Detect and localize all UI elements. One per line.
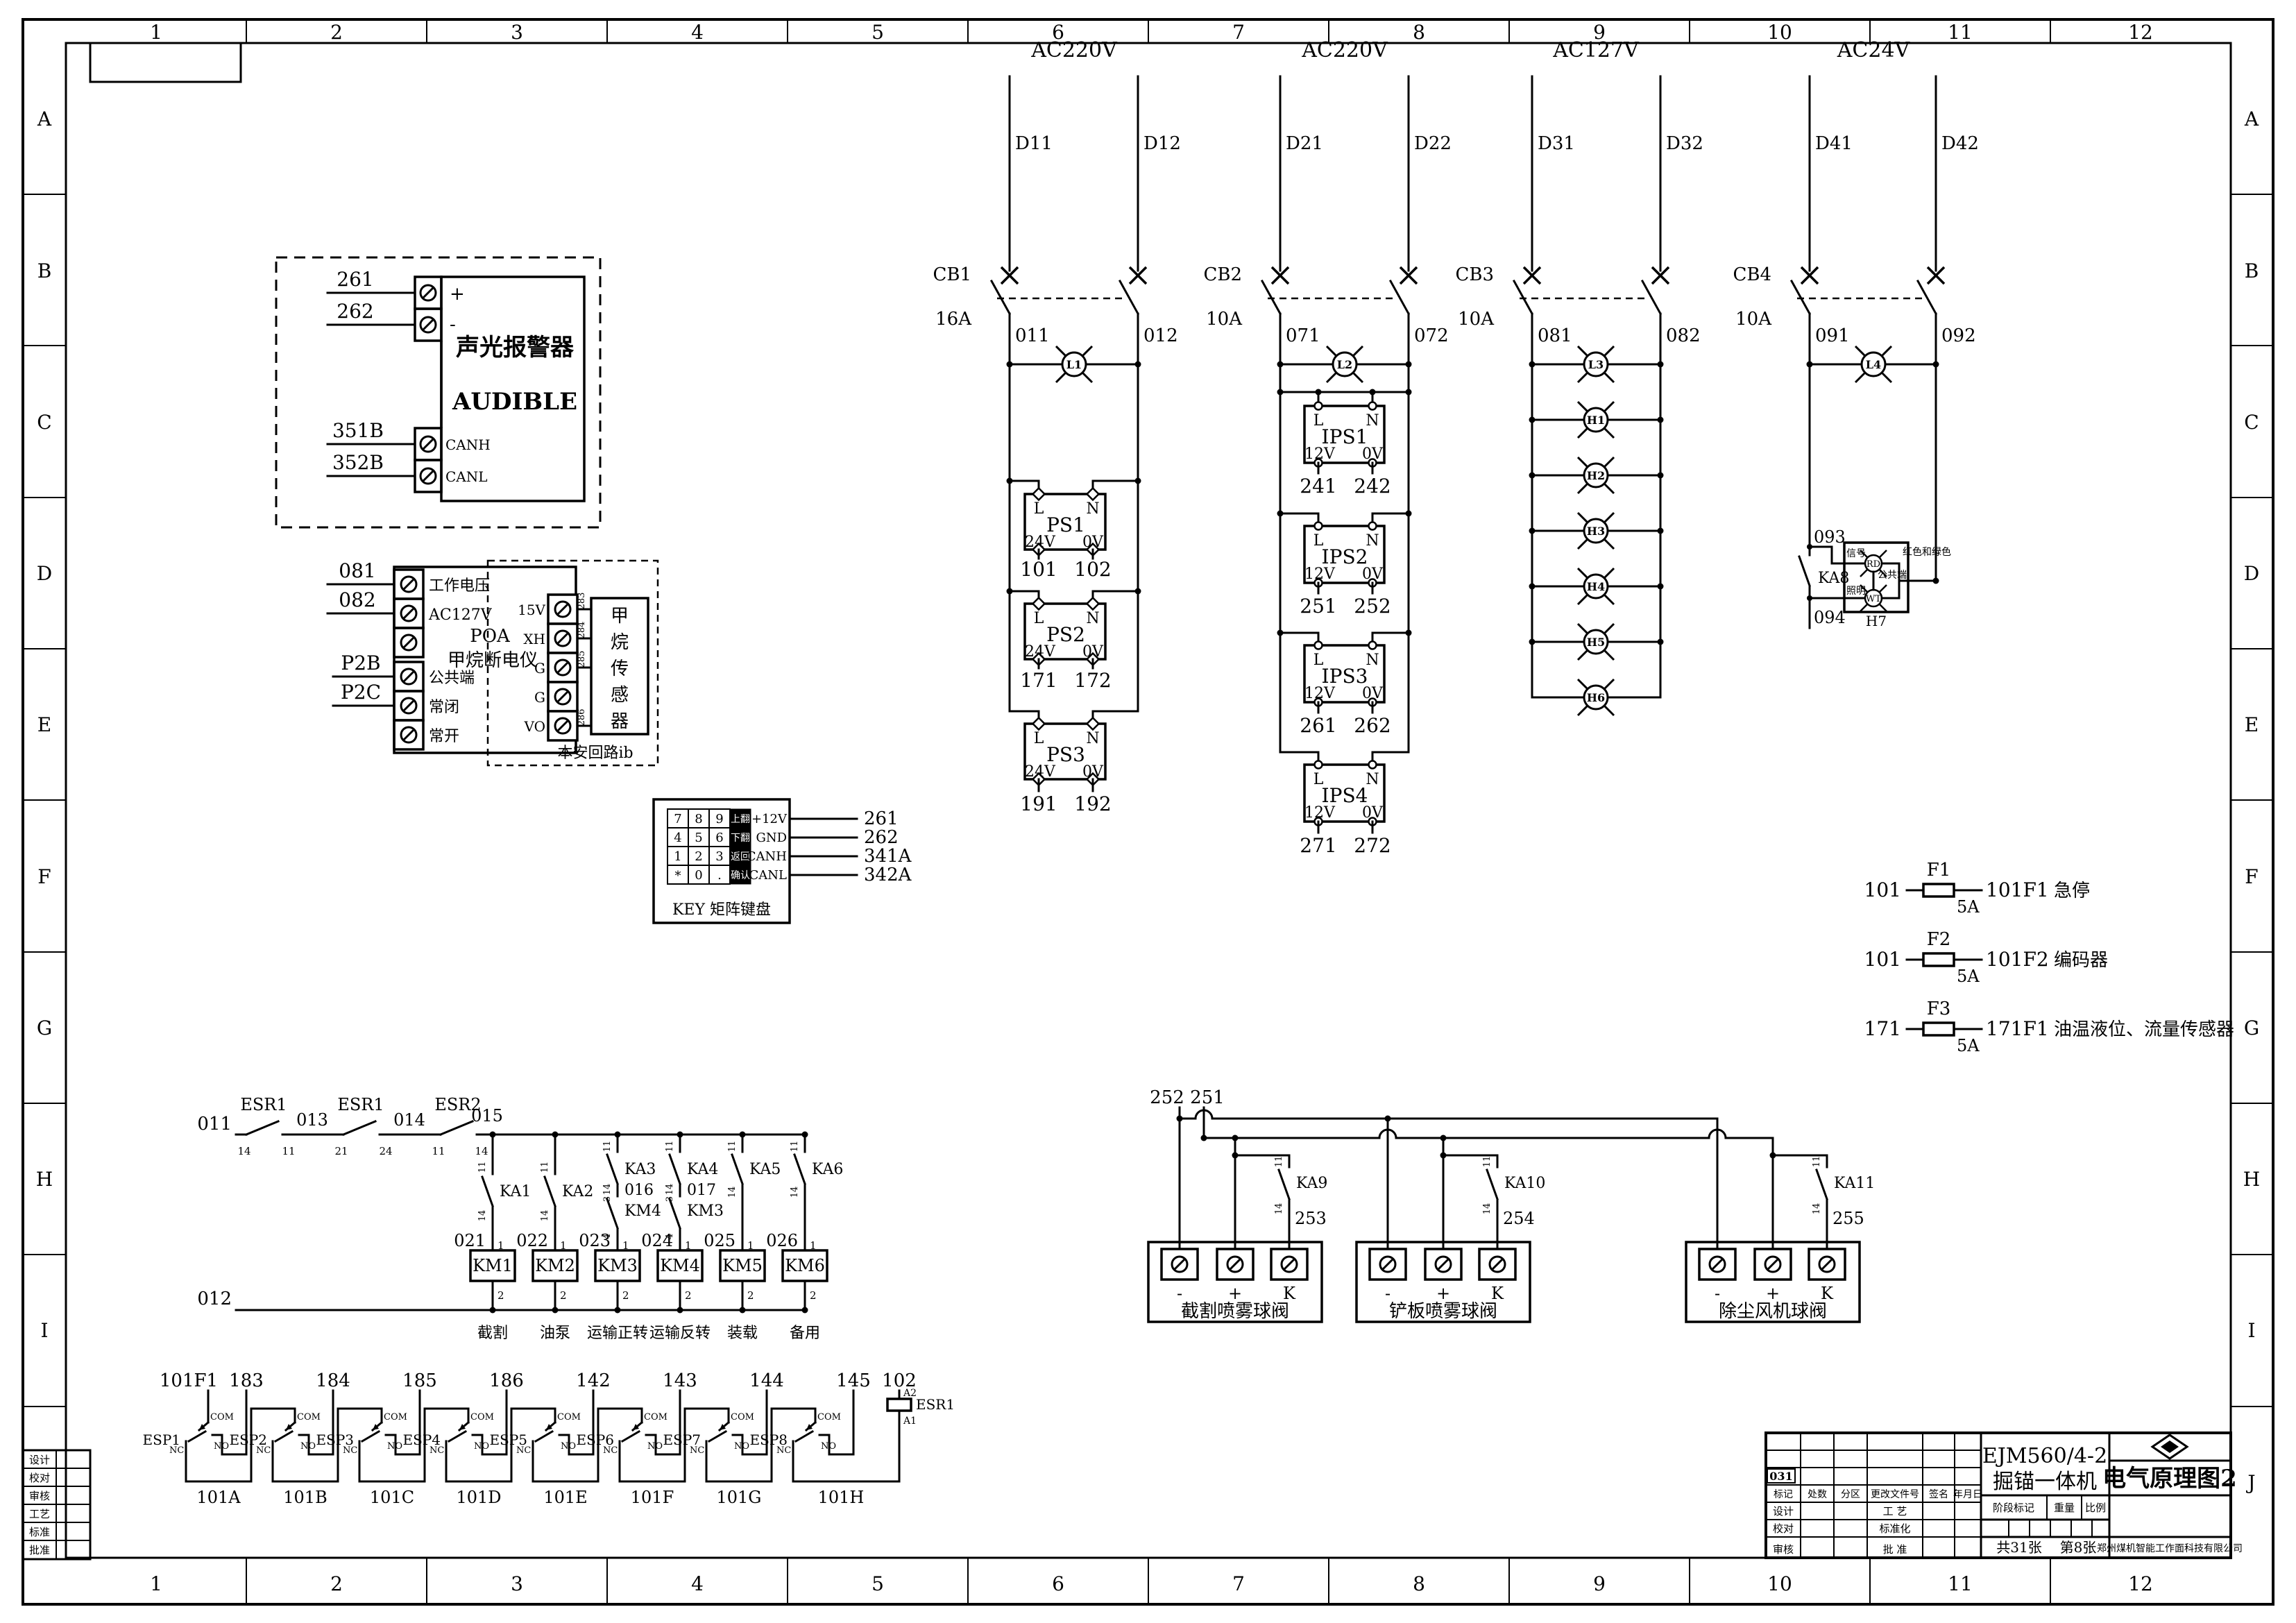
row-label: G (2244, 1017, 2259, 1039)
power-group-4: AC24V D41 D42 CB4 10A 091 092 L4 093 KA8… (1733, 38, 1978, 629)
wire-label: 186 (489, 1370, 524, 1391)
terminal-label: - (450, 314, 456, 335)
terminal-label: 15V (518, 602, 545, 618)
fuse-desc: 油温液位、流量传感器 (2054, 1019, 2234, 1040)
col-label: 12 (2128, 21, 2153, 44)
col-label: 6 (1052, 1572, 1064, 1595)
wire-label: 145 (836, 1370, 871, 1391)
wire-label: 101F1 (1986, 878, 2049, 901)
tb-field: 校对 (1773, 1522, 1794, 1535)
terminal-no: 14 (540, 1210, 550, 1222)
wire-label: 025 (704, 1231, 735, 1250)
sign-row-label: 校对 (29, 1472, 50, 1484)
terminal-label: CANH (445, 436, 491, 453)
terminal-label: COM (731, 1412, 754, 1422)
company-logo (2152, 1435, 2187, 1459)
terminal-label: + (1228, 1284, 1242, 1303)
wire-label: 255 (1832, 1209, 1864, 1228)
row-label: J (2245, 1471, 2255, 1494)
terminal-label: CANL (445, 468, 488, 485)
voltage-label: AC24V (1837, 38, 1911, 62)
esr1-coil: 102 A2 ESR1 A1 (882, 1370, 955, 1427)
wire-label: 351B (332, 419, 384, 442)
wire-label: 262 (337, 300, 373, 323)
contact-label: ESR1 (337, 1095, 384, 1114)
tb-header: 分区 (1841, 1489, 1860, 1500)
lamp-label: H3 (1587, 525, 1605, 538)
terminal-label: NO (647, 1441, 663, 1452)
wire-label: 185 (402, 1370, 437, 1391)
tb-header: 签名 (1929, 1488, 1948, 1500)
drawing-title: 电气原理图2 (2102, 1465, 2237, 1493)
esp-chain: 101F1 ESP1 COM NC NO 183 101A ESP2 COM N… (143, 1370, 955, 1507)
key: 确认 (731, 870, 750, 881)
col-label: 11 (1948, 21, 1973, 44)
col-label: 4 (691, 1572, 704, 1595)
wire-label: P2C (341, 681, 381, 704)
terminal-label: COM (297, 1412, 321, 1422)
wire-label: 261 (1300, 714, 1336, 737)
pin-no: A2 (903, 1388, 917, 1399)
breaker-rating: 16A (935, 309, 972, 330)
label-color: 红色和绿色 (1903, 546, 1951, 558)
terminal-no: 14 (790, 1187, 800, 1198)
relay-label: KA4 (687, 1161, 718, 1178)
tb-field: 审核 (1773, 1543, 1794, 1556)
terminal-no: 11 (727, 1141, 738, 1153)
col-label: 2 (330, 21, 343, 44)
terminal-label: NO (561, 1441, 576, 1452)
label-signal: 信号 (1846, 548, 1866, 559)
terminal-label: NC (169, 1445, 184, 1456)
wire-label: 284 (577, 622, 587, 639)
wire-label: 082 (1666, 325, 1701, 346)
breaker-rating: 10A (1458, 309, 1495, 330)
lamp-label: L4 (1866, 358, 1881, 371)
col-label: 5 (871, 1572, 884, 1595)
col-label: 12 (2128, 1572, 2153, 1595)
tb-header: 比例 (2085, 1502, 2106, 1514)
wire-label: 012 (197, 1289, 232, 1309)
terminal-label: NO (734, 1441, 749, 1452)
wire-label: 101 (1020, 558, 1057, 581)
wire-label: 071 (1286, 325, 1320, 346)
col-label: 3 (511, 21, 523, 44)
wire-label: 272 (1354, 834, 1391, 857)
relay-label: KA11 (1834, 1175, 1875, 1192)
wire-label: 253 (1295, 1209, 1327, 1228)
wire-label: 015 (471, 1106, 503, 1125)
wire-label: 072 (1414, 325, 1449, 346)
terminal-label: NC (256, 1445, 271, 1456)
methane-section: 081 082 P2B P2C 工作电压 AC127V 公共端 常闭 常开 PO… (328, 559, 658, 765)
terminal-label: NC (690, 1445, 704, 1456)
fuse-label: F2 (1927, 929, 1951, 950)
col-label: 11 (1948, 1572, 1973, 1595)
intrinsic-loop-label: 本安回路ib (557, 745, 633, 762)
terminal-no: 11 (1812, 1156, 1822, 1168)
key: 7 (674, 812, 681, 826)
fuse-rating: 5A (1957, 967, 1980, 986)
terminal-no: 14 (1274, 1203, 1284, 1215)
wire-label: D41 (1815, 133, 1853, 154)
pin-no: 2 (622, 1289, 629, 1302)
wire-label: 017 (687, 1182, 716, 1199)
row-label: A (2244, 108, 2259, 130)
key: 0 (695, 868, 702, 883)
terminal-no: 14 (477, 1210, 488, 1222)
relay-label: KA5 (749, 1161, 781, 1178)
terminal-no: 24 (379, 1145, 392, 1157)
tb-field: 标准化 (1879, 1522, 1910, 1535)
wire-label: 192 (1074, 792, 1111, 815)
sensor-name-vertical: 甲烷传感器 (611, 606, 629, 732)
wire-label: 013 (296, 1110, 328, 1130)
pin-label: N (1086, 610, 1099, 627)
function-label: 运输正转 (587, 1325, 648, 1342)
label-common: 公共端 (1878, 570, 1907, 581)
wire-label: 262 (864, 827, 899, 848)
terminal-no: 11 (665, 1141, 675, 1153)
wire-label: D42 (1941, 133, 1979, 154)
pin-no: 2 (560, 1289, 567, 1302)
row-label: B (2245, 260, 2259, 282)
terminal-no: 11 (432, 1145, 445, 1157)
contactor-label: KM1 (473, 1256, 513, 1275)
lamp-label: L1 (1066, 358, 1082, 371)
terminal-label: NC (430, 1445, 444, 1456)
terminal-label: G (534, 660, 545, 677)
relay-label: KM3 (687, 1203, 724, 1220)
wire-label: 082 (339, 588, 375, 611)
key: 2 (695, 849, 702, 864)
key: 9 (715, 812, 723, 826)
wire-label: 342A (864, 865, 912, 885)
terminal-label: K (1821, 1284, 1834, 1303)
port-label: +12V (751, 812, 788, 826)
wire-label: 021 (454, 1231, 486, 1250)
terminal-label: G (534, 689, 545, 706)
terminal-label: + (450, 284, 465, 305)
model-number: EJM560/4-2 (1982, 1444, 2107, 1468)
tb-header: 年月日 (1953, 1489, 1982, 1500)
signature-table: 设计 校对 审核 工艺 标准 批准 (23, 1450, 90, 1559)
terminal-label: NC (603, 1445, 618, 1456)
col-label: 1 (150, 1572, 162, 1595)
terminal-no: 11 (477, 1162, 488, 1173)
relay-label: KA2 (562, 1183, 593, 1200)
terminal-no: 3 (665, 1196, 675, 1202)
contactor-ladder: 011 ESR1 14 11 013 ESR1 21 24 014 ESR2 1… (197, 1095, 843, 1342)
key: 3 (715, 849, 723, 864)
power-group-3: AC127V D31 D32 CB3 10A 081 082 L3 H1 H2 … (1455, 38, 1703, 715)
terminal-label: COM (384, 1412, 407, 1422)
wire-label: D32 (1666, 133, 1703, 154)
wire-label: 283 (577, 593, 587, 610)
tb-header: 重量 (2054, 1502, 2075, 1514)
key: . (717, 868, 722, 883)
wire-label: 101F1 (160, 1370, 218, 1391)
sign-row-label: 工艺 (29, 1508, 50, 1520)
wire-label: 254 (1503, 1209, 1535, 1228)
company-name: 郑州煤机智能工作面科技有限公司 (2097, 1543, 2243, 1554)
fuse-rating: 5A (1957, 1036, 1980, 1055)
wire-label: 144 (749, 1370, 784, 1391)
wire-label: 024 (641, 1231, 673, 1250)
breaker-label: CB3 (1455, 264, 1494, 285)
key: 1 (674, 849, 681, 864)
terminal-label: NC (776, 1445, 791, 1456)
row-label: E (2245, 713, 2259, 736)
row-label: D (2244, 562, 2259, 585)
terminal-no: 11 (1274, 1156, 1284, 1168)
breaker-rating: 10A (1735, 309, 1772, 330)
terminal-label: - (1385, 1284, 1391, 1303)
wire-label: 142 (576, 1370, 611, 1391)
wire-label: 143 (663, 1370, 697, 1391)
power-group-2: AC220V D21 D22 CB2 10A 071 072 L2 L N IP… (1203, 38, 1451, 857)
function-label: 备用 (790, 1325, 820, 1342)
row-label: F (2245, 865, 2258, 888)
voltage-label: AC220V (1301, 38, 1388, 62)
wire-label: 262 (1354, 714, 1391, 737)
wire-label: 101F (631, 1488, 674, 1507)
fuse-desc: 急停 (2054, 881, 2090, 901)
wire-label: 091 (1815, 325, 1850, 346)
wire-label: 101G (717, 1488, 762, 1507)
function-label: 装载 (727, 1325, 758, 1342)
key: 上翻 (731, 814, 750, 825)
voltage-label: AC127V (1552, 38, 1640, 62)
wire-label: 101A (196, 1488, 241, 1507)
terminal-no: 14 (665, 1184, 675, 1196)
terminal-label: COM (644, 1412, 667, 1422)
audible-alarm-section: 261 262 351B 352B + - CANH CANL 声光报警器 AU… (276, 257, 600, 527)
terminal-label: NO (300, 1441, 316, 1452)
sheet-total: 共31张 (1996, 1539, 2041, 1556)
wire-label: 261 (337, 268, 373, 291)
wire-label: 286 (577, 709, 587, 726)
col-label: 9 (1593, 1572, 1606, 1595)
wire-label: D12 (1143, 133, 1181, 154)
row-label: B (37, 260, 52, 282)
row-label: I (2247, 1319, 2255, 1342)
relay-label: KA3 (624, 1161, 656, 1178)
lamp-label: WT (1866, 594, 1881, 604)
relay-label: KA1 (500, 1183, 531, 1200)
sign-row-label: 批准 (29, 1544, 50, 1556)
row-label: C (37, 411, 51, 434)
wire-label: 011 (1015, 325, 1050, 346)
function-label: 截割 (477, 1325, 508, 1342)
wire-label: 102 (1074, 558, 1111, 581)
key: 4 (674, 831, 681, 845)
row-label: D (37, 562, 52, 585)
function-label: 运输反转 (649, 1325, 711, 1342)
pin-label: N (1086, 500, 1099, 518)
sign-row-label: 审核 (29, 1490, 50, 1502)
terminal-label: + (1436, 1284, 1450, 1303)
pin-no: A1 (903, 1416, 917, 1427)
lamp-label: H4 (1587, 580, 1605, 593)
contactor-label: KM5 (722, 1256, 763, 1275)
terminal-no: 14 (475, 1145, 488, 1157)
relay-label: KA6 (812, 1161, 843, 1178)
valve-name: 截割喷雾球阀 (1181, 1301, 1289, 1322)
terminal-label: 工作电压 (429, 577, 490, 595)
breaker-label: CB1 (933, 264, 971, 285)
wire-label: 094 (1814, 608, 1846, 627)
title-block: 031 标记 处数 分区 更改文件号 签名 年月日 设计 工 艺 校对 标准化 … (1766, 1433, 2243, 1558)
pin-no: 2 (685, 1289, 692, 1302)
wire-label: 012 (1143, 325, 1178, 346)
unit-model: POA (470, 626, 511, 647)
key: 6 (715, 831, 723, 845)
wire-label: 014 (393, 1110, 425, 1130)
contactor-label: KM2 (535, 1256, 575, 1275)
schematic-drawing: 1 2 3 4 5 6 7 8 9 10 11 12 1 2 3 4 5 6 7… (0, 0, 2296, 1623)
terminal-label: 常开 (429, 728, 459, 745)
terminal-label: COM (210, 1412, 234, 1422)
wire-label: 101B (283, 1488, 327, 1507)
valve-name: 除尘风机球阀 (1719, 1301, 1827, 1322)
col-label: 7 (1232, 1572, 1245, 1595)
wire-label: 261 (864, 808, 899, 829)
wire-label: 171 (1864, 1017, 1901, 1040)
wire-label: 183 (229, 1370, 264, 1391)
valve-name: 铲板喷雾球阀 (1389, 1301, 1497, 1322)
pin-label: L (1034, 610, 1044, 627)
terminal-no: 14 (727, 1187, 738, 1198)
terminal-label: COM (557, 1412, 581, 1422)
wire-label: P2B (341, 652, 380, 674)
wire-label: 101C (370, 1488, 414, 1507)
col-label: 10 (1767, 21, 1792, 44)
wire-label: 016 (624, 1182, 654, 1199)
sign-row-label: 标准 (29, 1526, 50, 1538)
row-label: E (37, 713, 51, 736)
terminal-no: 14 (602, 1184, 613, 1196)
terminal-no: 14 (1482, 1203, 1493, 1215)
wire-label: 101 (1864, 948, 1901, 971)
lamp-label: L2 (1337, 358, 1352, 371)
wire-label: 171F1 (1986, 1017, 2049, 1040)
tb-header: 更改文件号 (1871, 1489, 1919, 1500)
contact-label: ESR1 (240, 1095, 287, 1114)
terminal-label: COM (470, 1412, 494, 1422)
col-label: 5 (871, 21, 884, 44)
schematic-page: 1 2 3 4 5 6 7 8 9 10 11 12 1 2 3 4 5 6 7… (0, 0, 2296, 1623)
coil-label: ESR1 (916, 1396, 955, 1413)
col-label: 2 (330, 1572, 343, 1595)
terminal-no: 11 (1482, 1156, 1493, 1168)
revision-reference-box (90, 43, 241, 82)
lamp-label: L3 (1588, 358, 1604, 371)
row-label: C (2244, 411, 2259, 434)
wire-label: 101H (818, 1488, 865, 1507)
wire-label: D11 (1015, 133, 1053, 154)
lamp-label: H5 (1587, 636, 1605, 649)
tb-header: 标记 (1774, 1489, 1793, 1500)
lamp-label: H2 (1587, 469, 1605, 482)
row-label: A (37, 108, 52, 130)
key: 5 (695, 831, 702, 845)
wire-label: 011 (197, 1114, 232, 1135)
terminal-label: VO (524, 718, 546, 735)
terminal-label: - (1177, 1284, 1182, 1303)
terminal-label: K (1491, 1284, 1504, 1303)
sign-row-label: 设计 (29, 1454, 50, 1466)
terminal-no: 11 (282, 1145, 295, 1157)
fuse-label: F1 (1927, 860, 1951, 881)
port-label: GND (756, 831, 787, 845)
row-label: H (36, 1168, 53, 1191)
wire-label: 101E (543, 1488, 587, 1507)
wire-label: 172 (1074, 669, 1111, 692)
terminal-label: + (1766, 1284, 1780, 1303)
wire-label: 092 (1941, 325, 1976, 346)
relay-label: KA10 (1504, 1175, 1545, 1192)
row-label: G (37, 1017, 52, 1039)
wire-label: 093 (1814, 527, 1846, 547)
terminal-no: 3 (602, 1196, 613, 1202)
terminal-label: - (1715, 1284, 1720, 1303)
col-label: 10 (1767, 1572, 1792, 1595)
voltage-label: AC220V (1030, 38, 1118, 62)
fuse-section: 101 F1 5A 101F1 急停 101 F2 5A 101F2 编码器 1… (1864, 860, 2234, 1055)
wire-label: 341A (864, 846, 912, 867)
breaker-label: CB4 (1733, 264, 1771, 285)
power-group-1: AC220V D11 D12 CB1 16A 011 012 L1 L N PS… (933, 38, 1180, 815)
port-label: CANL (749, 868, 788, 883)
terminal-label: NC (343, 1445, 357, 1456)
row-label: I (40, 1319, 48, 1342)
terminal-label: AC127V (428, 606, 493, 624)
terminal-no: 11 (540, 1162, 550, 1173)
function-label: 油泵 (540, 1325, 570, 1342)
breaker-rating: 10A (1206, 309, 1243, 330)
keypad-section: 7 8 9 上翻 4 5 6 下翻 1 2 3 返回 * 0 . 确认 +12V… (654, 799, 912, 923)
tb-field: 工 艺 (1883, 1505, 1907, 1518)
wire-label: 251 (1300, 595, 1336, 618)
terminal-label: NO (474, 1441, 489, 1452)
contactor-label: KM3 (597, 1256, 638, 1275)
wire-label: 081 (1538, 325, 1572, 346)
terminal-label: NC (516, 1445, 531, 1456)
tb-header: 处数 (1808, 1489, 1827, 1500)
terminal-label: 常闭 (429, 699, 459, 716)
pin-no: 2 (810, 1289, 817, 1302)
terminal-no: 14 (237, 1145, 250, 1157)
key: * (675, 869, 681, 883)
col-label: 1 (150, 21, 162, 44)
terminal-label: 公共端 (429, 670, 475, 687)
fuse-desc: 编码器 (2054, 950, 2108, 971)
label-light: 照明 (1846, 586, 1866, 597)
key: 8 (695, 812, 702, 826)
lamp-label: H6 (1587, 691, 1605, 704)
machine-name: 掘锚一体机 (1993, 1470, 2097, 1494)
fuse-rating: 5A (1957, 897, 1980, 917)
pin-no: 2 (498, 1289, 504, 1302)
pin-label: L (1034, 730, 1044, 747)
wire-label: 022 (516, 1231, 548, 1250)
key: 下翻 (731, 833, 750, 844)
contactor-label: KM4 (660, 1256, 700, 1275)
box-label: H7 (1866, 613, 1887, 629)
port-label: CANH (747, 849, 787, 864)
wire-label: 023 (579, 1231, 611, 1250)
